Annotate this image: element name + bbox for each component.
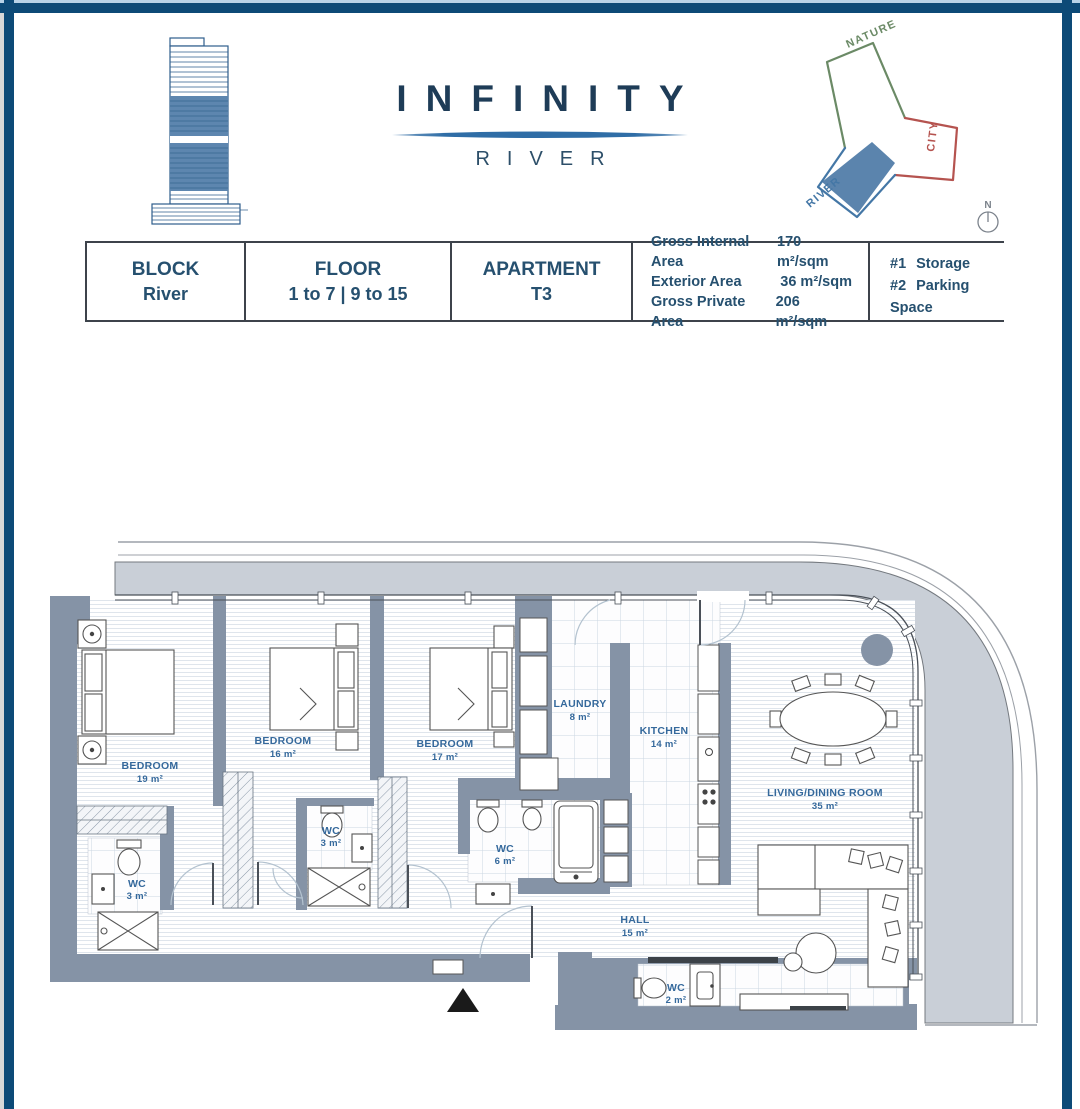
floor-plan-drawing: BEDROOM 19 m² BEDROOM 16 m² BEDROOM 17 m… <box>0 520 1080 1080</box>
room-area: 2 m² <box>666 995 687 1006</box>
floor-label: FLOOR <box>315 259 382 281</box>
room-area: 3 m² <box>127 891 148 902</box>
area-row: Gross Internal Area 170 m²/sqm <box>651 232 852 272</box>
nature-label: NATURE <box>844 18 898 51</box>
block-value: River <box>143 284 188 305</box>
entrance-arrow-icon <box>447 988 479 1012</box>
room-label: HALL <box>620 914 649 926</box>
compass-n-label: N <box>984 200 991 211</box>
wall-inset <box>433 960 463 974</box>
room-area: 16 m² <box>270 749 296 760</box>
city-label: CITY <box>925 120 941 152</box>
brand-logo: INFINITY RIVER <box>290 78 790 171</box>
apartment-label: APARTMENT <box>483 259 601 281</box>
table-cell-areas: Gross Internal Area 170 m²/sqm Exterior … <box>633 243 870 320</box>
terrace-door-gap <box>909 980 921 1004</box>
block-label: BLOCK <box>132 259 200 281</box>
tower-icon <box>148 36 248 226</box>
area-row: Exterior Area 36 m²/sqm <box>651 272 852 292</box>
room-label: WC <box>128 878 146 890</box>
area-row: Gross Private Area 206 m²/sqm <box>651 292 852 332</box>
room-label: WC <box>667 982 685 994</box>
area-value: 170 m²/sqm <box>777 232 852 272</box>
extra-row: #2Parking Space <box>890 275 1004 319</box>
table-cell-floor: FLOOR 1 to 7 | 9 to 15 <box>246 243 452 320</box>
room-label: BEDROOM <box>255 735 312 747</box>
area-value: 36 m²/sqm <box>780 272 852 292</box>
wc2-sliding-door <box>648 957 778 963</box>
area-label: Gross Internal Area <box>651 232 777 272</box>
floor-plan-page: INFINITY RIVER NATURE CITY RIVER N <box>0 0 1080 1109</box>
room-area: 35 m² <box>812 801 838 812</box>
room-area: 15 m² <box>622 928 648 939</box>
compass-icon: N <box>978 200 998 232</box>
extra-num: #2 <box>890 278 906 294</box>
extra-label: Storage <box>916 256 970 272</box>
frame-top <box>0 3 1080 13</box>
site-diagram: NATURE CITY RIVER N <box>795 15 1080 250</box>
kitchen-door-gap <box>697 591 749 602</box>
room-area: 17 m² <box>432 752 458 763</box>
nature-side-outline <box>827 43 905 148</box>
area-value: 206 m²/sqm <box>776 292 852 332</box>
extra-row: #1Storage <box>890 253 970 275</box>
floor-value: 1 to 7 | 9 to 15 <box>288 284 407 305</box>
info-table: BLOCK River FLOOR 1 to 7 | 9 to 15 APART… <box>85 241 1004 322</box>
table-cell-block: BLOCK River <box>87 243 246 320</box>
room-label: LAUNDRY <box>553 698 606 710</box>
apartment-value: T3 <box>531 284 552 305</box>
area-label: Exterior Area <box>651 272 742 292</box>
table-cell-apartment: APARTMENT T3 <box>452 243 633 320</box>
room-label: WC <box>322 825 340 837</box>
room-area: 14 m² <box>651 739 677 750</box>
area-label: Gross Private Area <box>651 292 776 332</box>
room-label: BEDROOM <box>122 760 179 772</box>
room-area: 19 m² <box>137 774 163 785</box>
table-cell-extras: #1Storage #2Parking Space <box>870 243 1004 320</box>
room-label: LIVING/DINING ROOM <box>767 787 883 799</box>
brand-title: INFINITY <box>290 78 790 120</box>
brand-subtitle: RIVER <box>290 148 790 171</box>
swoosh-icon <box>390 130 690 140</box>
room-area: 3 m² <box>321 838 342 849</box>
room-label: WC <box>496 843 514 855</box>
room-area: 6 m² <box>495 856 516 867</box>
kitchen-counter <box>698 645 719 884</box>
room-label: BEDROOM <box>417 738 474 750</box>
room-label: KITCHEN <box>640 725 689 737</box>
room-area: 8 m² <box>570 712 591 723</box>
extra-num: #1 <box>890 256 906 272</box>
